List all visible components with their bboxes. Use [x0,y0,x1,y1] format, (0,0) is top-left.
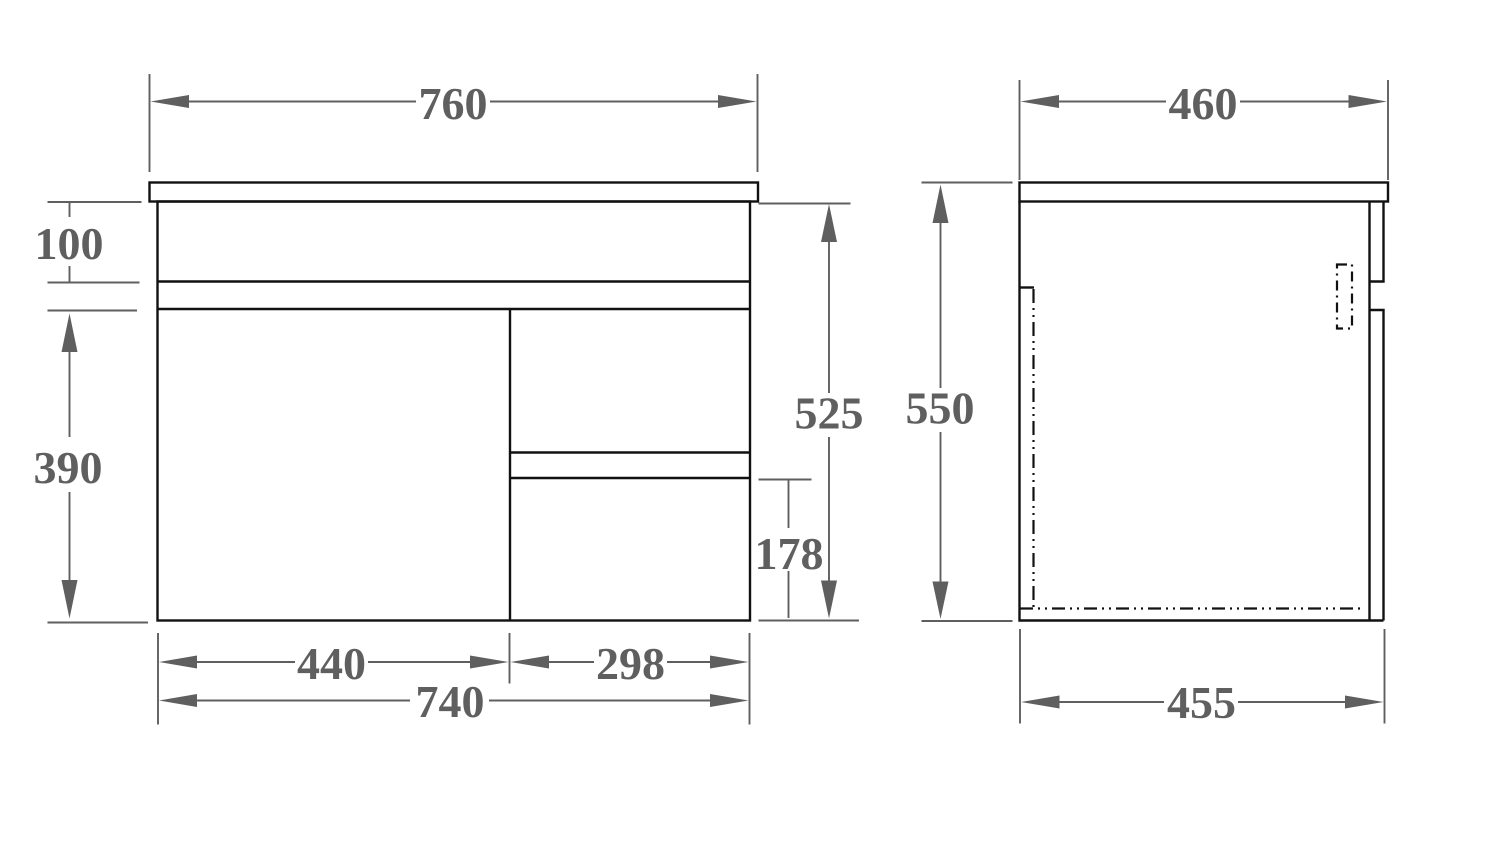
svg-text:178: 178 [755,528,824,579]
svg-text:740: 740 [416,676,485,727]
svg-text:298: 298 [596,638,665,689]
svg-text:550: 550 [906,383,975,434]
svg-text:760: 760 [419,78,488,129]
svg-text:460: 460 [1169,78,1238,129]
svg-text:390: 390 [34,442,103,493]
svg-text:440: 440 [297,638,366,689]
svg-text:525: 525 [795,388,864,439]
svg-text:100: 100 [35,218,104,269]
svg-text:455: 455 [1167,677,1236,728]
